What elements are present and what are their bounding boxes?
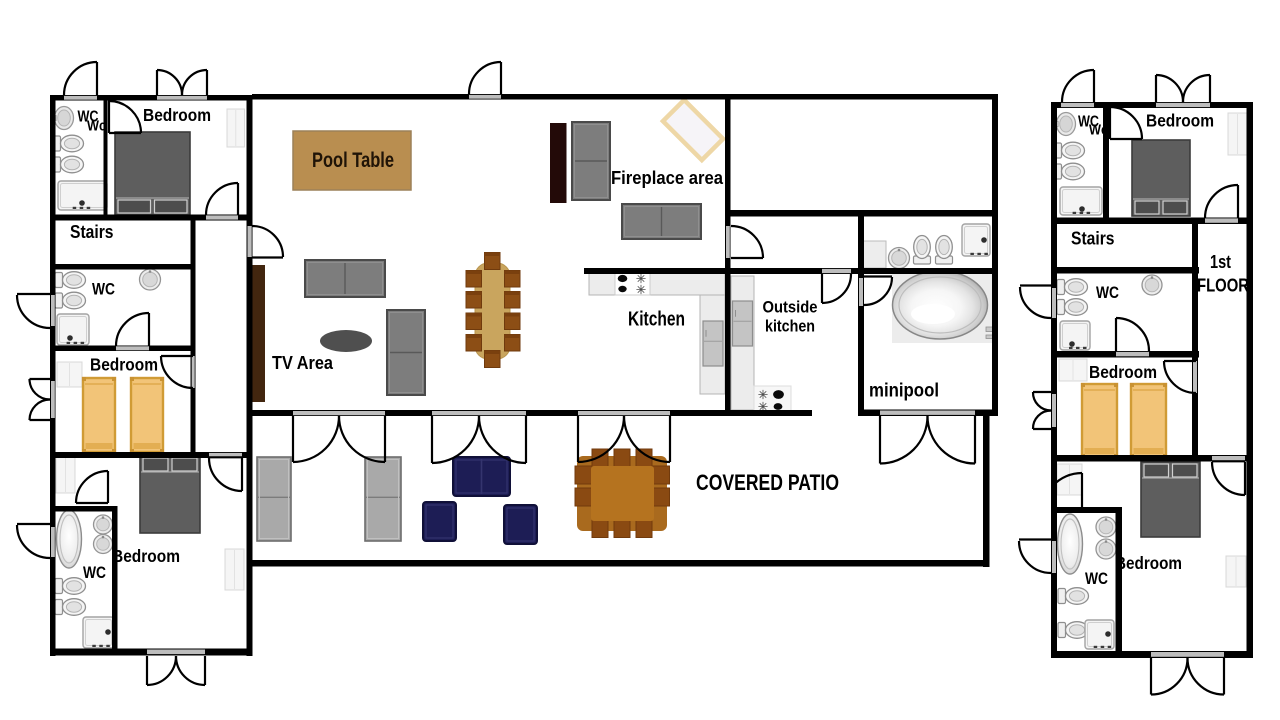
svg-text:WC: WC bbox=[83, 563, 106, 582]
svg-text:FLOOR: FLOOR bbox=[1197, 276, 1249, 296]
svg-text:Wc: Wc bbox=[87, 118, 106, 135]
svg-text:Stairs: Stairs bbox=[1071, 228, 1115, 249]
svg-text:Outside: Outside bbox=[763, 299, 818, 317]
svg-text:WC: WC bbox=[1085, 569, 1108, 588]
svg-text:Kitchen: Kitchen bbox=[628, 309, 685, 331]
svg-text:Wc: Wc bbox=[1089, 122, 1108, 139]
svg-text:kitchen: kitchen bbox=[765, 318, 815, 336]
svg-text:Bedroom: Bedroom bbox=[1115, 553, 1182, 573]
svg-text:Pool Table: Pool Table bbox=[312, 149, 394, 172]
svg-text:minipool: minipool bbox=[869, 381, 939, 402]
svg-text:Fireplace area: Fireplace area bbox=[611, 167, 724, 188]
svg-text:COVERED PATIO: COVERED PATIO bbox=[696, 470, 839, 495]
svg-text:TV Area: TV Area bbox=[272, 353, 334, 373]
svg-text:Bedroom: Bedroom bbox=[143, 105, 211, 125]
svg-text:Bedroom: Bedroom bbox=[112, 546, 180, 566]
svg-text:Bedroom: Bedroom bbox=[90, 355, 158, 375]
svg-text:Stairs: Stairs bbox=[70, 221, 114, 242]
svg-text:WC: WC bbox=[1096, 283, 1119, 302]
svg-text:Bedroom: Bedroom bbox=[1146, 111, 1214, 131]
svg-text:Bedroom: Bedroom bbox=[1089, 362, 1157, 382]
svg-text:WC: WC bbox=[92, 280, 115, 299]
svg-text:1st: 1st bbox=[1210, 252, 1231, 272]
